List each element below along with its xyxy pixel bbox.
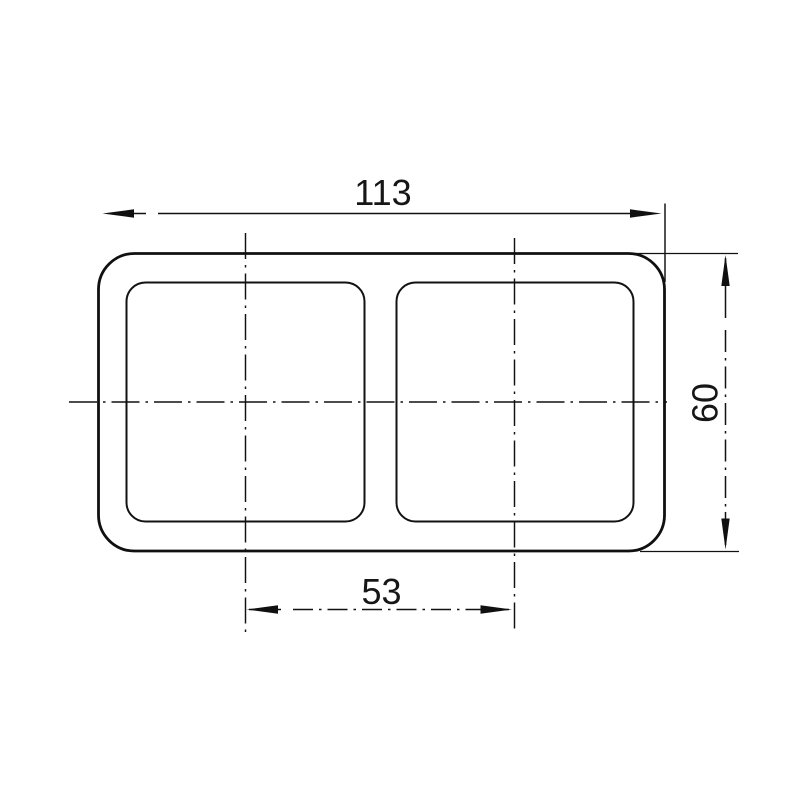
- svg-text:60: 60: [685, 383, 726, 423]
- svg-text:113: 113: [354, 172, 411, 213]
- svg-text:53: 53: [361, 571, 401, 612]
